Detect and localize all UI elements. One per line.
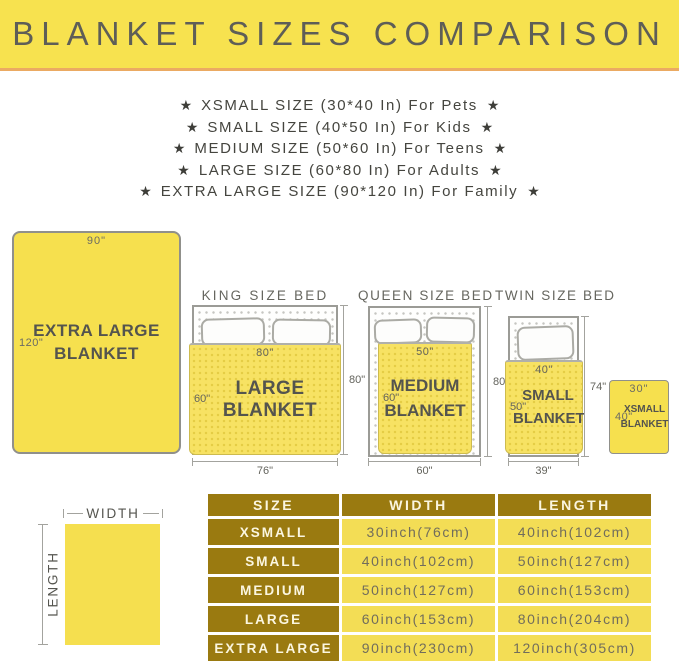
xl-blanket-name: EXTRA LARGE BLANKET	[14, 233, 179, 452]
large-blanket-name: LARGE BLANKET	[190, 345, 340, 454]
star-icon: ★	[489, 162, 502, 178]
table-header-width: WIDTH	[342, 494, 495, 516]
queen-bed-width-dimension: 60"	[368, 461, 481, 462]
legend-length-label: LENGTH	[46, 547, 61, 621]
page-title: BLANKET SIZES COMPARISON	[12, 15, 667, 53]
table-cell: 60inch(153cm)	[342, 606, 495, 632]
star-icon: ★	[173, 140, 186, 156]
twin-bed-height-label: 74"	[590, 381, 606, 393]
medium-blanket-diagram: 50" 60" MEDIUM BLANKET	[378, 342, 472, 454]
legend-length-dimension	[42, 524, 43, 645]
xsmall-blanket-name: XSMALL BLANKET	[610, 381, 668, 453]
size-list-item-xsmall: ★XSMALL SIZE (30*40 In) For Pets★	[0, 95, 679, 117]
star-icon: ★	[139, 183, 152, 199]
medium-blanket-name: MEDIUM BLANKET	[379, 344, 471, 453]
legend-width-label: WIDTH	[86, 506, 139, 521]
size-list-text: EXTRA LARGE SIZE (90*120 In) For Family	[161, 183, 519, 200]
small-blanket-diagram: 40" 50" SMALL BLANKET	[505, 360, 583, 454]
size-list: ★XSMALL SIZE (30*40 In) For Pets★ ★SMALL…	[0, 95, 679, 203]
table-cell: 50inch(127cm)	[498, 548, 651, 574]
size-list-item-medium: ★MEDIUM SIZE (50*60 In) For Teens★	[0, 138, 679, 160]
dimension-tick	[63, 509, 64, 518]
legend-width-dimension: WIDTH	[63, 505, 163, 521]
size-list-item-extra-large: ★EXTRA LARGE SIZE (90*120 In) For Family…	[0, 181, 679, 203]
queen-bed-width-label: 60"	[416, 465, 432, 477]
table-cell: 50inch(127cm)	[342, 577, 495, 603]
large-blanket-diagram: 80" 60" LARGE BLANKET	[189, 343, 341, 455]
pillow	[374, 318, 423, 345]
king-bed-title: KING SIZE BED	[190, 288, 340, 303]
table-row-label: SMALL	[208, 548, 339, 574]
star-icon: ★	[481, 119, 494, 135]
star-icon: ★	[180, 97, 193, 113]
table-cell: 90inch(230cm)	[342, 635, 495, 661]
twin-bed-width-label: 39"	[535, 465, 551, 477]
size-list-text: LARGE SIZE (60*80 In) For Adults	[199, 162, 480, 179]
size-list-item-small: ★SMALL SIZE (40*50 In) For Kids★	[0, 117, 679, 139]
table-cell: 120inch(305cm)	[498, 635, 651, 661]
small-blanket-name: SMALL BLANKET	[506, 362, 582, 453]
king-bed-width-label: 76"	[257, 465, 273, 477]
size-table: SIZE WIDTH LENGTH XSMALL 30inch(76cm) 40…	[208, 494, 651, 661]
table-cell: 60inch(153cm)	[498, 577, 651, 603]
size-list-text: MEDIUM SIZE (50*60 In) For Teens	[194, 140, 484, 157]
table-cell: 40inch(102cm)	[498, 519, 651, 545]
dimension-line	[143, 513, 159, 514]
queen-bed-title: QUEEN SIZE BED	[358, 288, 490, 303]
pillow	[516, 325, 574, 361]
twin-bed-title: TWIN SIZE BED	[495, 288, 601, 303]
dimension-tick	[162, 509, 163, 518]
table-cell: 80inch(204cm)	[498, 606, 651, 632]
star-icon: ★	[186, 119, 199, 135]
twin-bed-width-dimension: 39"	[508, 461, 579, 462]
star-icon: ★	[177, 162, 190, 178]
table-cell: 30inch(76cm)	[342, 519, 495, 545]
legend-blanket-swatch	[65, 524, 160, 645]
king-bed-width-dimension: 76"	[192, 461, 338, 462]
size-list-item-large: ★LARGE SIZE (60*80 In) For Adults★	[0, 160, 679, 182]
table-row-label: MEDIUM	[208, 577, 339, 603]
queen-bed-height-dimension: 80"	[487, 306, 488, 457]
pillow	[426, 316, 476, 343]
king-bed-height-label: 80"	[349, 374, 365, 386]
table-header-length: LENGTH	[498, 494, 651, 516]
dimension-line	[67, 513, 83, 514]
table-row-label: EXTRA LARGE	[208, 635, 339, 661]
twin-bed-height-dimension: 74"	[584, 316, 585, 457]
table-row-label: XSMALL	[208, 519, 339, 545]
star-icon: ★	[494, 140, 507, 156]
table-row-label: LARGE	[208, 606, 339, 632]
table-cell: 40inch(102cm)	[342, 548, 495, 574]
king-bed-height-dimension: 80"	[343, 305, 344, 455]
table-header-size: SIZE	[208, 494, 339, 516]
blanket-comparison-infographic: BLANKET SIZES COMPARISON ★XSMALL SIZE (3…	[0, 0, 679, 667]
star-icon: ★	[527, 183, 540, 199]
star-icon: ★	[487, 97, 500, 113]
xsmall-blanket-diagram: 30" 40" XSMALL BLANKET	[609, 380, 669, 454]
size-list-text: SMALL SIZE (40*50 In) For Kids	[207, 119, 471, 136]
extra-large-blanket-diagram: 90" 120" EXTRA LARGE BLANKET	[12, 231, 181, 454]
size-list-text: XSMALL SIZE (30*40 In) For Pets	[201, 97, 478, 114]
header-banner: BLANKET SIZES COMPARISON	[0, 0, 679, 71]
